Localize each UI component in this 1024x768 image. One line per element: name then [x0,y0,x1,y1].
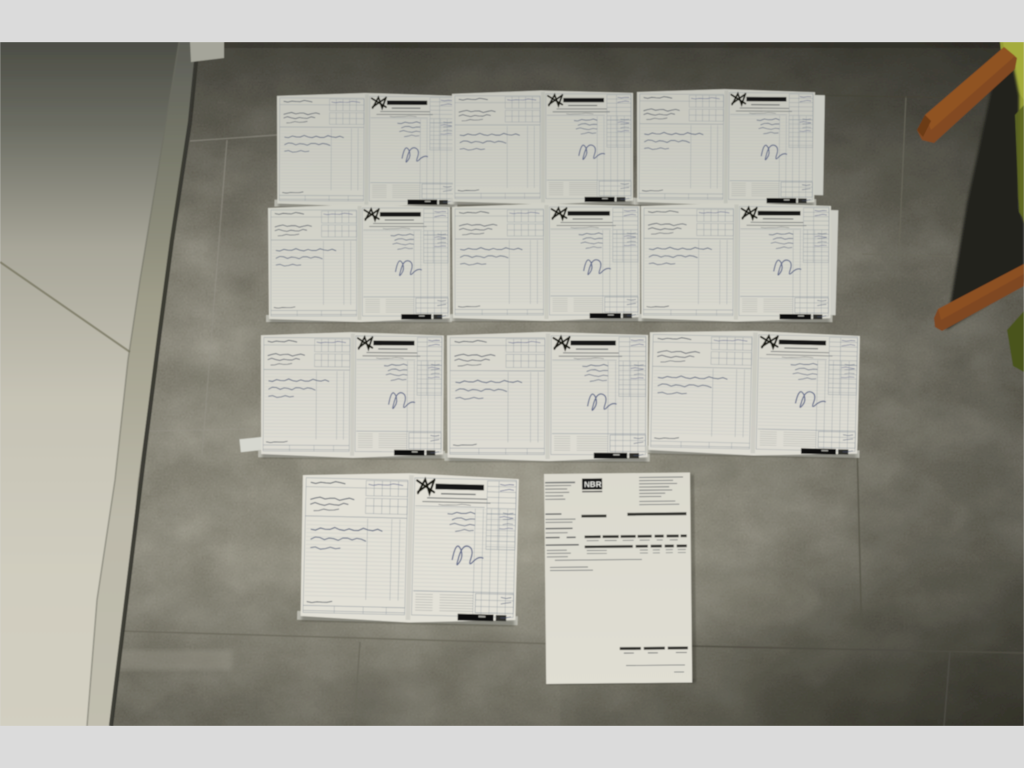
svg-text:NBR: NBR [584,480,602,489]
